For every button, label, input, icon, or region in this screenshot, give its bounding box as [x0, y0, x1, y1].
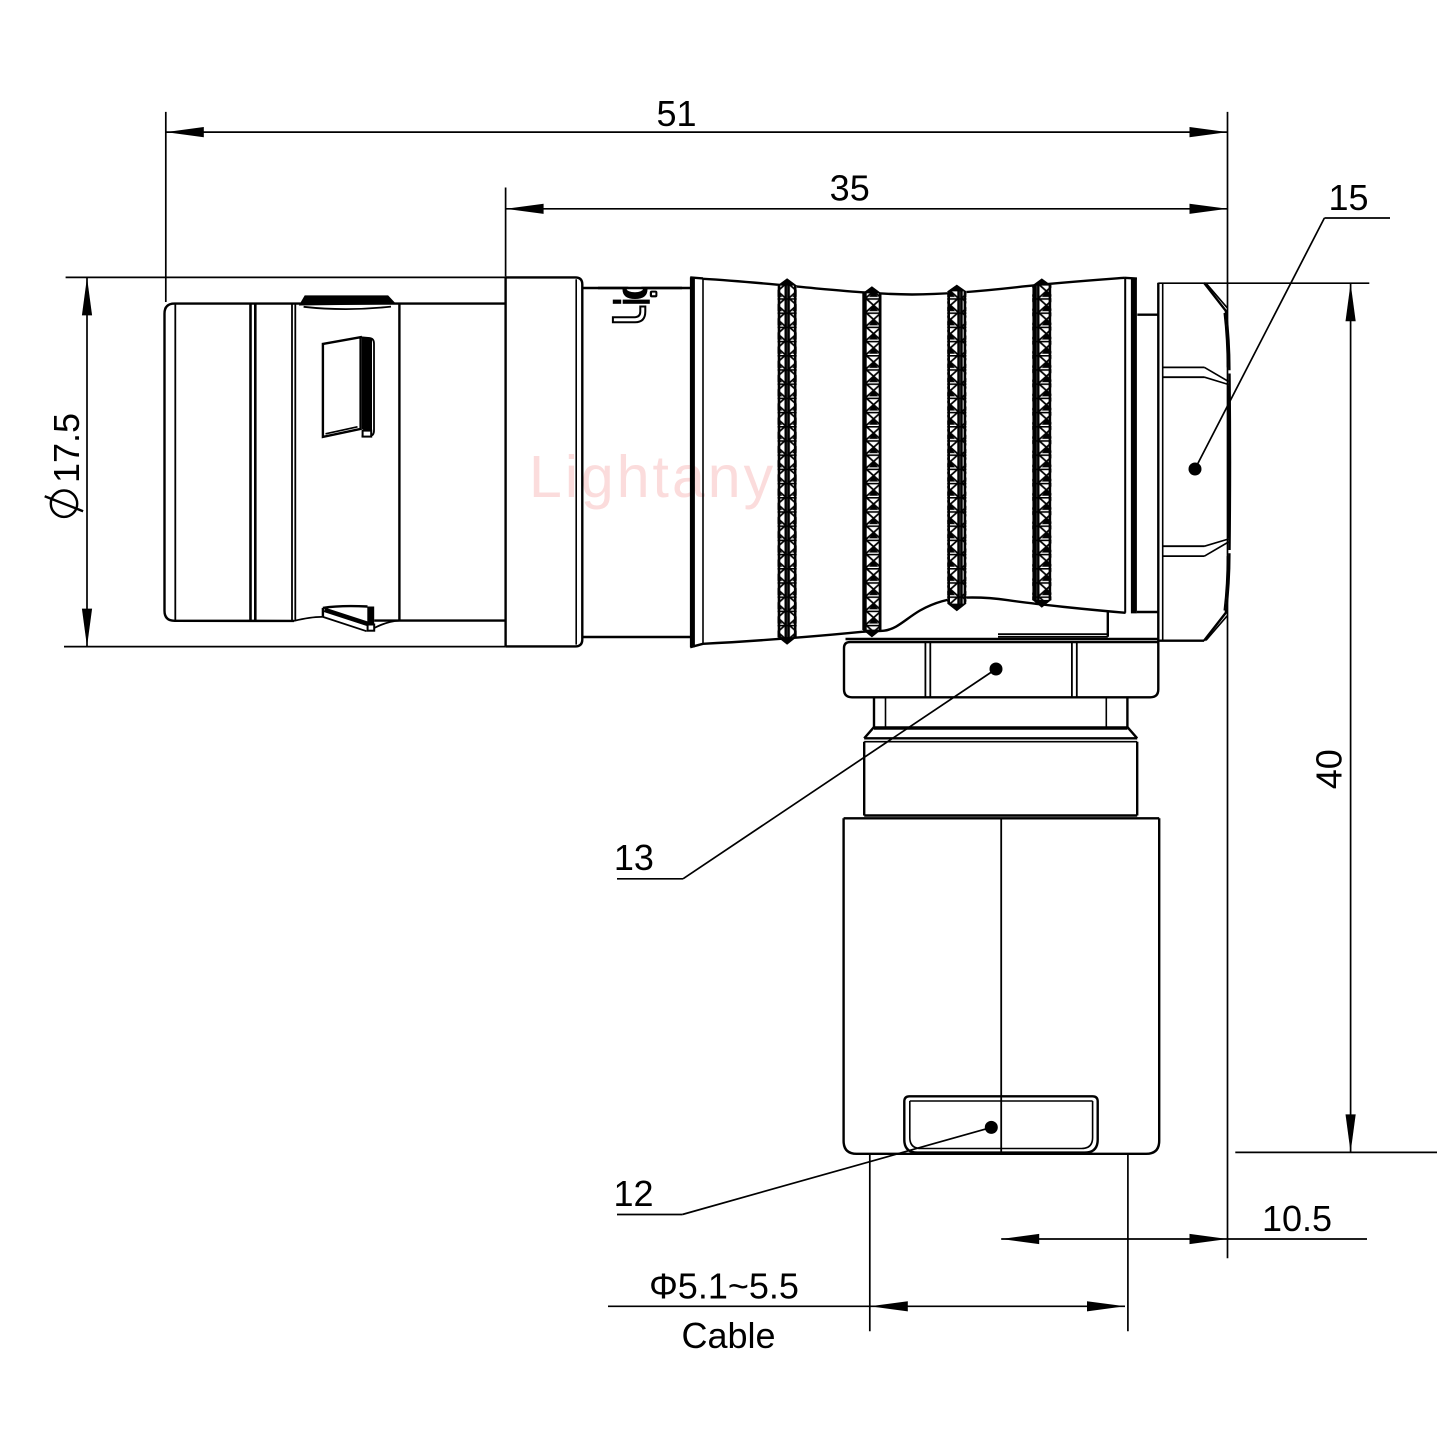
svg-text:Lightany: Lightany	[529, 444, 776, 510]
svg-text:12: 12	[613, 1173, 653, 1214]
svg-text:Cable: Cable	[681, 1315, 775, 1356]
svg-text:Φ5.1~5.5: Φ5.1~5.5	[649, 1266, 799, 1307]
svg-text:51: 51	[656, 93, 696, 134]
svg-text:13: 13	[614, 837, 654, 878]
svg-text:35: 35	[830, 167, 870, 208]
svg-text:40: 40	[1308, 749, 1349, 789]
svg-text:17.5: 17.5	[46, 413, 87, 483]
svg-text:10.5: 10.5	[1262, 1198, 1332, 1239]
svg-text:15: 15	[1328, 177, 1368, 218]
